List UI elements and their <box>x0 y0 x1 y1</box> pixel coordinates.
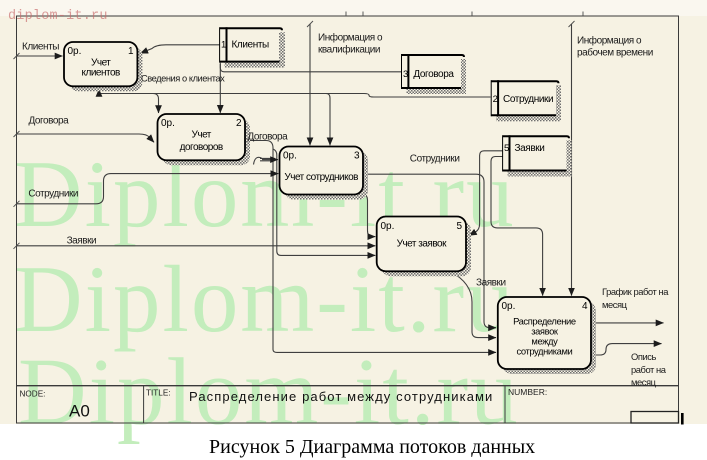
svg-text:2: 2 <box>493 94 498 105</box>
svg-text:График работ на: График работ на <box>602 286 669 297</box>
svg-text:сотрудниками: сотрудниками <box>516 346 572 357</box>
svg-text:Учет: Учет <box>192 130 212 141</box>
svg-text:квалификации: квалификации <box>318 44 380 56</box>
svg-text:0р.: 0р. <box>381 221 395 232</box>
svg-text:Учет заявок: Учет заявок <box>397 239 447 250</box>
svg-text:NUMBER:: NUMBER: <box>508 387 547 397</box>
svg-text:Сотрудники: Сотрудники <box>410 154 460 165</box>
svg-text:Сведения о клиентах: Сведения о клиентах <box>141 74 225 84</box>
svg-text:0р.: 0р. <box>68 46 82 57</box>
svg-text:Договора: Договора <box>248 132 289 143</box>
svg-text:3: 3 <box>403 69 408 80</box>
svg-text:3: 3 <box>354 151 360 162</box>
svg-text:месяц: месяц <box>602 299 628 310</box>
svg-text:1: 1 <box>221 40 226 51</box>
svg-text:0р.: 0р. <box>283 151 297 162</box>
svg-text:Сотрудники: Сотрудники <box>28 189 78 200</box>
svg-text:0р.: 0р. <box>502 301 516 312</box>
svg-text:Учет сотрудников: Учет сотрудников <box>284 172 358 183</box>
svg-text:месяц: месяц <box>631 377 657 388</box>
svg-text:0р.: 0р. <box>161 118 175 129</box>
svg-text:Заявки: Заявки <box>515 143 545 154</box>
svg-text:Клиенты: Клиенты <box>22 42 59 53</box>
svg-text:Информация о: Информация о <box>318 32 383 44</box>
svg-text:Рисунок 5 Диаграмма потоков да: Рисунок 5 Диаграмма потоков данных <box>209 436 535 458</box>
svg-text:Договора: Договора <box>413 69 454 80</box>
svg-text:Опись: Опись <box>631 351 656 362</box>
svg-text:Договора: Договора <box>29 116 70 127</box>
svg-text:договоров: договоров <box>180 142 223 153</box>
svg-text:Клиенты: Клиенты <box>232 40 270 51</box>
svg-text:2: 2 <box>236 118 242 129</box>
svg-text:Информация о: Информация о <box>577 35 642 47</box>
svg-text:работ на: работ на <box>631 364 667 375</box>
svg-text:NODE:: NODE: <box>20 390 46 399</box>
svg-text:5: 5 <box>504 143 509 154</box>
svg-text:Распределение работ между сот: Распределение работ между сотрудниками <box>189 389 493 404</box>
svg-text:5: 5 <box>456 221 462 232</box>
svg-text:4: 4 <box>582 301 588 312</box>
svg-text:Заявки: Заявки <box>476 278 506 289</box>
svg-text:diplom-it.ru: diplom-it.ru <box>8 9 108 24</box>
svg-text:1: 1 <box>128 46 134 57</box>
svg-text:клиентов: клиентов <box>82 68 121 79</box>
svg-text:TITLE:: TITLE: <box>146 389 171 398</box>
svg-text:Заявки: Заявки <box>67 236 97 247</box>
svg-text:A0: A0 <box>69 402 90 421</box>
svg-text:Сотрудники: Сотрудники <box>503 94 553 105</box>
svg-text:рабочем времени: рабочем времени <box>577 47 653 59</box>
